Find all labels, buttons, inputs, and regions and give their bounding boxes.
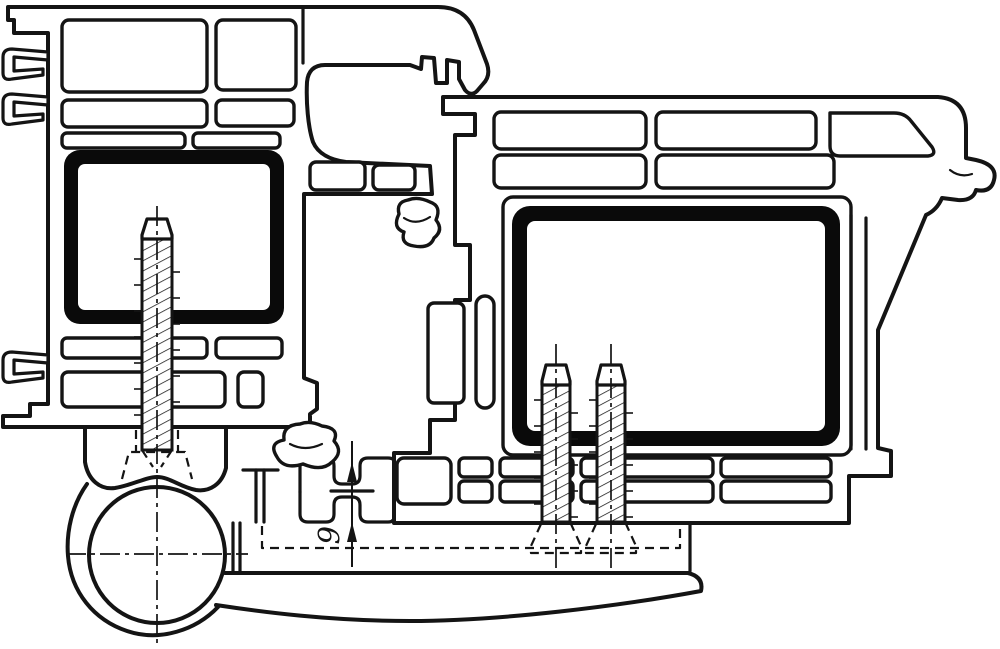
frame-chamber [62,133,185,148]
sash-chamber [459,481,492,502]
steel-reinforcement-sash-cavity [527,221,825,431]
sash-chamber [459,458,492,477]
sash-euro-groove-slot [476,296,494,408]
technical-drawing-svg: 6 [0,0,1000,649]
steel-reinforcement-frame-cavity [78,164,270,310]
sash-chamber [656,155,834,188]
frame-chamber [62,20,207,92]
sash-chamber [721,458,831,477]
frame-chamber [216,20,296,90]
frame-chamber [193,133,280,148]
frame-chamber [310,162,365,190]
sash-chamber [494,112,646,149]
dimension-arrow-icon [347,462,357,482]
frame-clip-icon [3,94,48,124]
frame-chamber [62,338,207,358]
dimension-value: 6 [311,526,345,544]
sash-chamber [397,458,451,504]
interlock-wave-lower [300,492,396,522]
frame-chamber [216,100,294,126]
frame-chamber [62,100,207,127]
sash-chamber [721,481,831,502]
dimension-arrow-icon [347,522,357,542]
frame-chamber [373,165,415,190]
frame-clip-icon [3,352,48,382]
sash-chamber [494,155,646,188]
hinge-cross-section-drawing: 6 [0,0,1000,649]
gasket-lower-icon [274,422,339,467]
frame-chamber [216,338,282,358]
hinge-leaf-bottom-curve [216,573,701,621]
sash-profile [394,97,995,523]
frame-chamber [238,372,263,407]
sash-chamber [656,112,816,149]
sash-chamber [428,303,464,403]
frame-clip-icon [3,49,48,79]
